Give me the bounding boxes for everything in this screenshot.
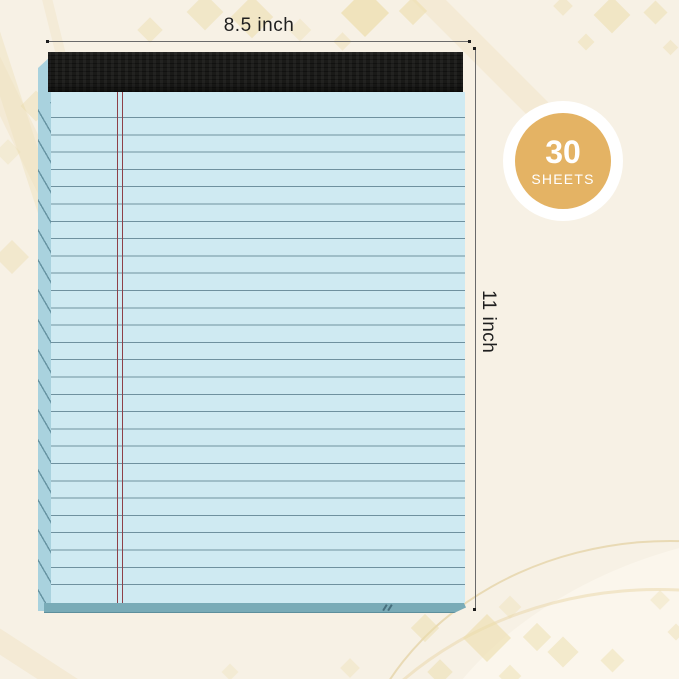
diamond-decoration	[222, 664, 239, 679]
diamond-decoration	[643, 0, 667, 24]
sheet-count-badge-circle: 30 SHEETS	[515, 113, 611, 209]
height-dimension-label: 11 inch	[477, 290, 499, 353]
badge-unit: SHEETS	[531, 171, 594, 187]
diamond-decoration	[427, 659, 452, 679]
sheet-stack-hatch	[38, 102, 51, 611]
diamond-decoration	[553, 0, 573, 16]
diamond-decoration	[411, 614, 439, 642]
dimension-endpoint-dot	[473, 47, 476, 50]
ruled-lines	[51, 117, 465, 595]
dimension-endpoint-dot	[46, 40, 49, 43]
notepad-binding-strip	[48, 52, 463, 92]
notepad-bottom-edge	[44, 603, 466, 613]
bottom-edge-slash-mark	[381, 603, 395, 612]
dimension-endpoint-dot	[473, 608, 476, 611]
dimension-endpoint-dot	[468, 40, 471, 43]
sheet-count-badge: 30 SHEETS	[503, 101, 623, 221]
height-dimension-line	[475, 49, 476, 610]
badge-count: 30	[545, 135, 581, 169]
diamond-decoration	[523, 623, 551, 651]
product-image-scene: 8.5 inch 11 inch 30 SHEETS	[0, 0, 679, 679]
margin-line-left	[117, 92, 118, 603]
diamond-decoration	[0, 240, 29, 274]
diamond-decoration	[578, 34, 595, 51]
width-dimension-label: 8.5 inch	[48, 15, 470, 37]
diamond-decoration	[499, 596, 522, 619]
diamond-decoration	[463, 614, 511, 662]
diamond-decoration	[668, 624, 679, 641]
notepad-sheet-stack-edge	[38, 54, 51, 611]
diamond-decoration	[340, 658, 360, 678]
diamond-decoration	[499, 665, 522, 679]
margin-line-right	[122, 92, 123, 603]
diamond-decoration	[547, 636, 578, 667]
notepad-paper	[51, 92, 465, 603]
width-dimension-line	[48, 41, 470, 42]
diamond-decoration	[650, 590, 670, 610]
diamond-decoration	[594, 0, 631, 33]
diamond-decoration	[662, 39, 678, 55]
diamond-decoration	[600, 648, 624, 672]
